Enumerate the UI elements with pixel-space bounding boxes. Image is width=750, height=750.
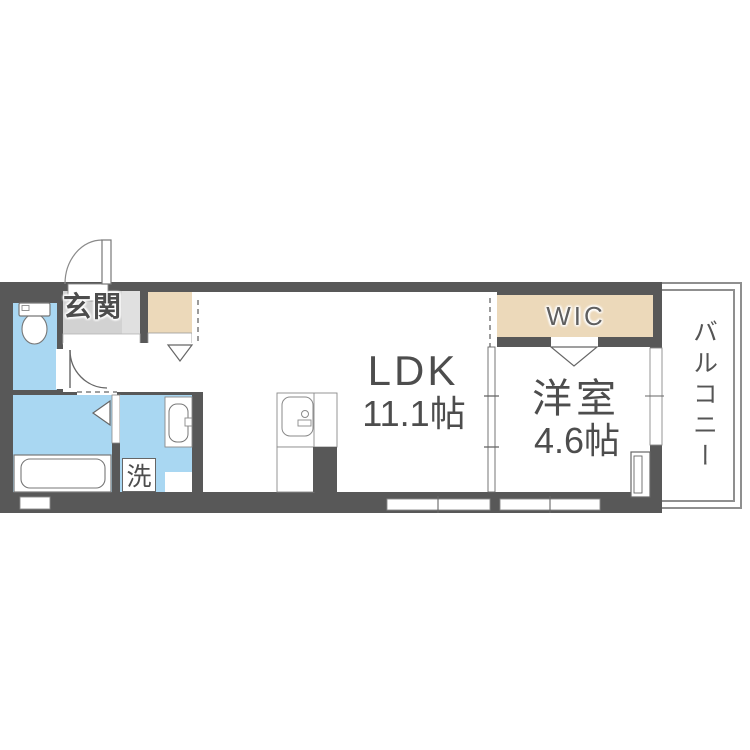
washing-machine-label: 洗 <box>126 457 151 493</box>
ldk-area-label: 11.1帖 <box>362 396 465 432</box>
toilet-doorway-gap <box>56 349 64 389</box>
washing-machine-spot: 洗 <box>122 458 156 492</box>
entrance-label: 玄関 <box>63 293 123 321</box>
kitchen-wall-stub <box>313 447 337 492</box>
entrance-step-floor <box>122 291 140 334</box>
wic-doorway-gap <box>551 337 598 347</box>
window-shutter-fixture <box>631 452 650 497</box>
washroom-corner-notch <box>165 472 192 492</box>
ldk-label: LDK <box>368 350 459 392</box>
wic-label: WIC <box>546 303 606 329</box>
bathroom-window <box>20 497 50 509</box>
sliding-partition <box>488 347 495 492</box>
entrance-step-edge <box>63 334 140 344</box>
vanity-sink-fixture <box>165 397 192 447</box>
western-room-area-label: 4.6帖 <box>534 423 620 459</box>
bath-door-track <box>112 395 120 443</box>
floor-plan: 玄関 WIC LDK 11.1帖 洋室 4.6帖 バルコニー 洗 <box>0 0 750 750</box>
hall-closet <box>148 292 192 333</box>
bathtub-fixture <box>14 455 111 492</box>
western-room-label: 洋室 <box>532 379 620 419</box>
balcony-label: バルコニー <box>691 319 716 474</box>
